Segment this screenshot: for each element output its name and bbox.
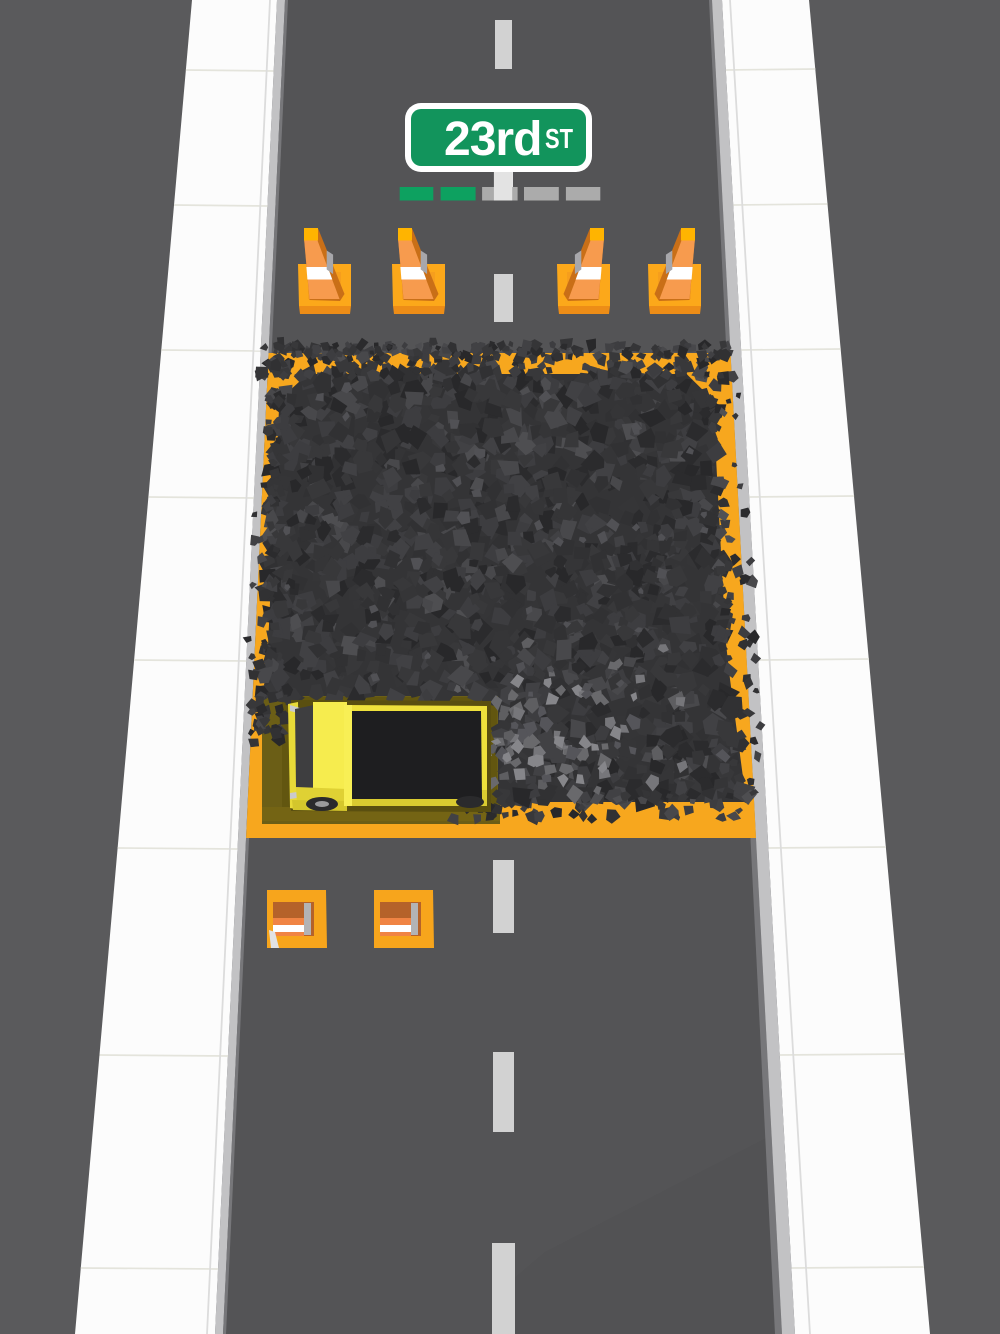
svg-text:ST: ST — [545, 123, 573, 154]
svg-text:23rd: 23rd — [444, 113, 541, 166]
